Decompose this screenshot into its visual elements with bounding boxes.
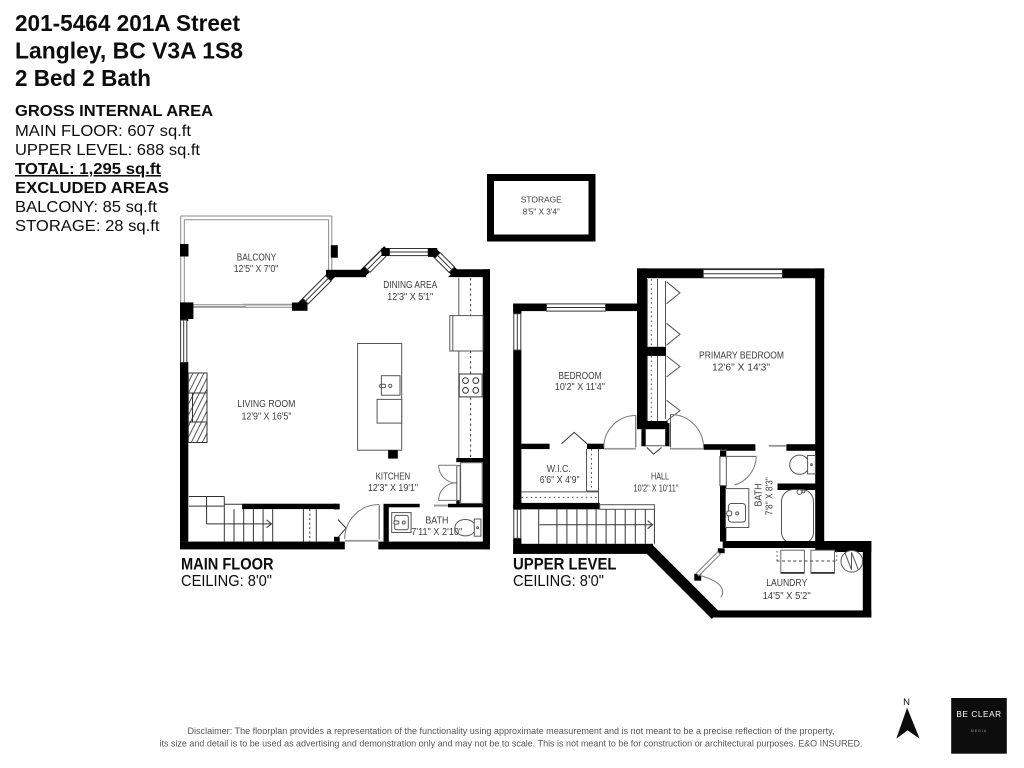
svg-text:UPPER LEVEL: UPPER LEVEL — [513, 556, 617, 574]
svg-text:201-5464 201A Street: 201-5464 201A Street — [15, 10, 240, 36]
svg-text:EXCLUDED AREAS: EXCLUDED AREAS — [15, 180, 169, 197]
svg-text:7'8" X 8'3": 7'8" X 8'3" — [765, 477, 776, 515]
svg-text:12'3" X 5'1": 12'3" X 5'1" — [387, 292, 433, 303]
svg-text:LAUNDRY: LAUNDRY — [766, 578, 807, 589]
svg-text:BATH: BATH — [754, 484, 765, 507]
svg-text:GROSS INTERNAL AREA: GROSS INTERNAL AREA — [15, 103, 213, 120]
svg-text:UPPER LEVEL: 688 sq.ft: UPPER LEVEL: 688 sq.ft — [15, 142, 201, 159]
svg-text:STORAGE: STORAGE — [521, 195, 562, 205]
svg-text:MEDIA: MEDIA — [971, 729, 987, 733]
svg-text:DINING AREA: DINING AREA — [383, 280, 437, 291]
svg-text:BATH: BATH — [425, 516, 448, 527]
svg-text:12'5" X 7'0": 12'5" X 7'0" — [234, 264, 279, 275]
svg-text:12'9" X 16'5": 12'9" X 16'5" — [242, 412, 292, 423]
svg-text:BEDROOM: BEDROOM — [559, 371, 602, 382]
svg-text:N: N — [903, 697, 910, 708]
svg-text:MAIN FLOOR: 607 sq.ft: MAIN FLOOR: 607 sq.ft — [15, 123, 192, 140]
svg-text:KITCHEN: KITCHEN — [376, 472, 411, 483]
svg-text:10'2" X 10'11": 10'2" X 10'11" — [634, 484, 679, 495]
svg-text:BE CLEAR: BE CLEAR — [956, 710, 1001, 719]
svg-text:CEILING: 8'0": CEILING: 8'0" — [181, 573, 272, 590]
svg-text:BALCONY: BALCONY — [237, 253, 277, 264]
svg-text:Disclaimer: The floorplan prov: Disclaimer: The floorplan provides a rep… — [188, 726, 835, 736]
svg-text:12'3" X 19'1": 12'3" X 19'1" — [368, 483, 418, 494]
svg-text:7'11" X 2'10": 7'11" X 2'10" — [411, 527, 462, 538]
svg-text:Langley, BC V3A 1S8: Langley, BC V3A 1S8 — [15, 38, 243, 64]
svg-text:W.I.C.: W.I.C. — [547, 464, 571, 475]
svg-text:TOTAL: 1,295 sq.ft: TOTAL: 1,295 sq.ft — [15, 161, 161, 178]
svg-text:its size and detail is to be u: its size and detail is to be used as adv… — [160, 739, 863, 749]
svg-text:HALL: HALL — [651, 472, 669, 483]
svg-text:LIVING ROOM: LIVING ROOM — [237, 399, 295, 410]
svg-text:2 Bed 2 Bath: 2 Bed 2 Bath — [15, 65, 151, 91]
svg-text:10'2" X 11'4": 10'2" X 11'4" — [555, 382, 605, 393]
svg-text:STORAGE: 28 sq.ft: STORAGE: 28 sq.ft — [15, 218, 160, 235]
svg-text:BALCONY: 85 sq.ft: BALCONY: 85 sq.ft — [15, 199, 158, 216]
svg-text:6'6" X 4'9": 6'6" X 4'9" — [540, 475, 580, 486]
svg-text:CEILING: 8'0": CEILING: 8'0" — [513, 573, 604, 590]
svg-text:PRIMARY BEDROOM: PRIMARY BEDROOM — [699, 351, 784, 362]
svg-text:14'5" X 5'2": 14'5" X 5'2" — [763, 591, 811, 602]
svg-text:12'6" X 14'3": 12'6" X 14'3" — [712, 363, 770, 374]
svg-text:MAIN FLOOR: MAIN FLOOR — [181, 556, 274, 574]
svg-text:8'5" X 3'4": 8'5" X 3'4" — [523, 207, 560, 217]
